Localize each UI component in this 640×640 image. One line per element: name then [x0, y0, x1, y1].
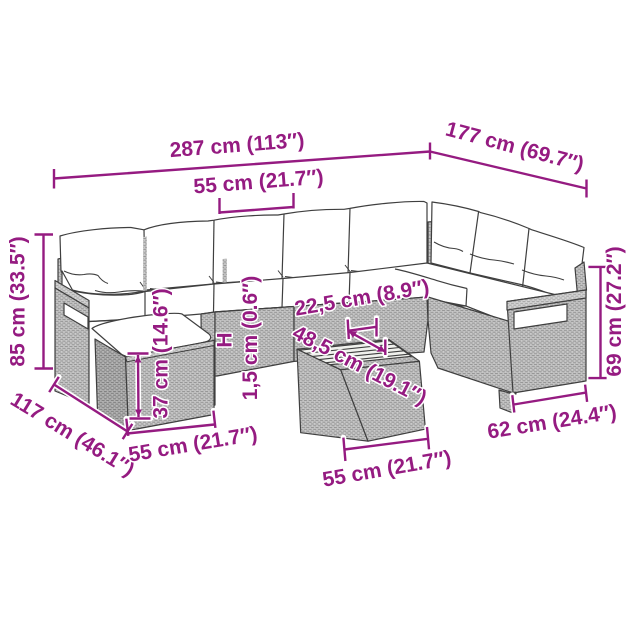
- svg-text:287 cm (113″): 287 cm (113″): [169, 129, 305, 162]
- svg-text:69 cm (27.2″): 69 cm (27.2″): [603, 246, 626, 376]
- svg-text:37 cm (14.6″): 37 cm (14.6″): [150, 288, 173, 418]
- svg-text:1,5 cm (0.6″): 1,5 cm (0.6″): [239, 276, 262, 400]
- svg-text:55 cm (21.7″): 55 cm (21.7″): [321, 446, 453, 491]
- svg-text:85 cm (33.5″): 85 cm (33.5″): [7, 236, 30, 366]
- svg-text:H: H: [214, 332, 237, 347]
- svg-text:55 cm (21.7″): 55 cm (21.7″): [193, 166, 325, 199]
- svg-text:177 cm (69.7″): 177 cm (69.7″): [443, 118, 586, 177]
